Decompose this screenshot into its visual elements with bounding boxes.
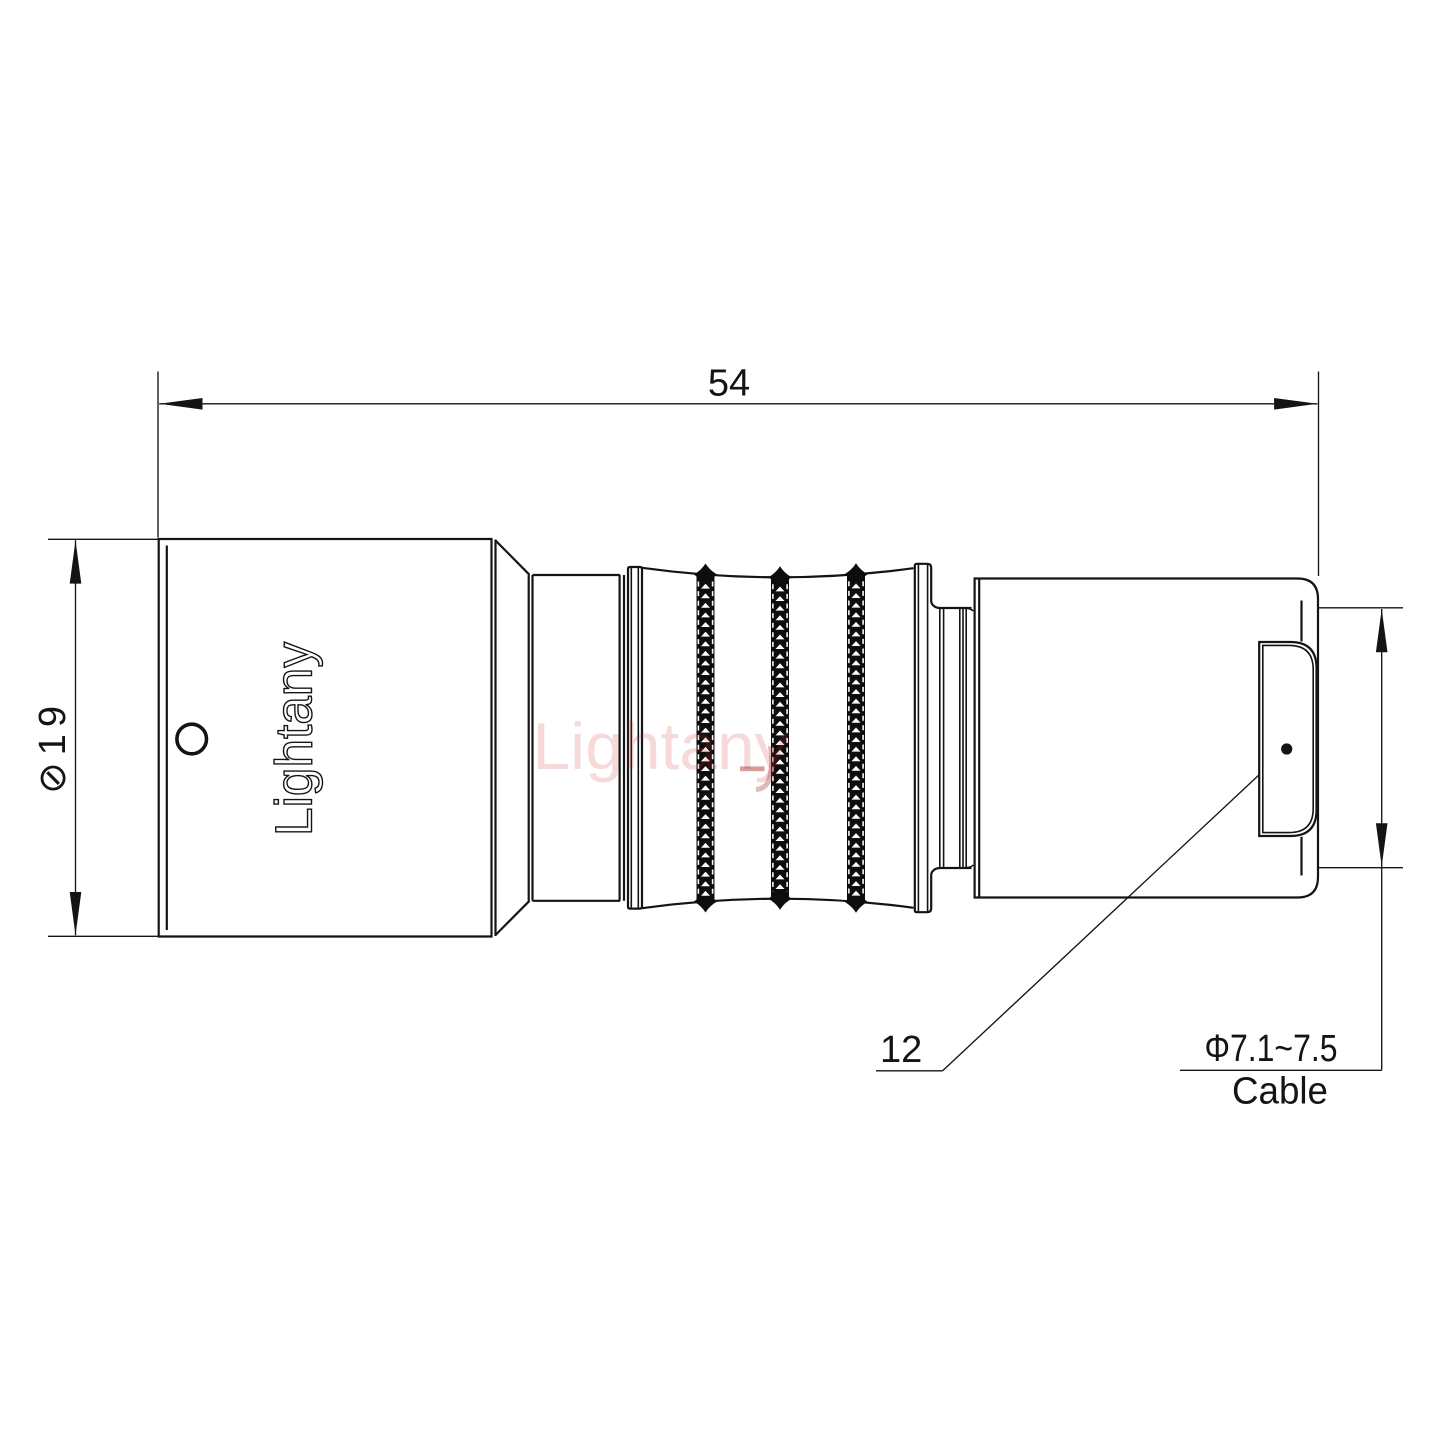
- svg-text:Cable: Cable: [1232, 1071, 1328, 1113]
- svg-text:Lightany: Lightany: [266, 642, 324, 836]
- svg-text:54: 54: [708, 363, 750, 405]
- svg-text:Lightany: Lightany: [533, 709, 789, 783]
- svg-text:Φ7.1~7.5: Φ7.1~7.5: [1205, 1028, 1338, 1070]
- svg-text:12: 12: [880, 1029, 922, 1071]
- svg-text:⊘19: ⊘19: [32, 706, 74, 794]
